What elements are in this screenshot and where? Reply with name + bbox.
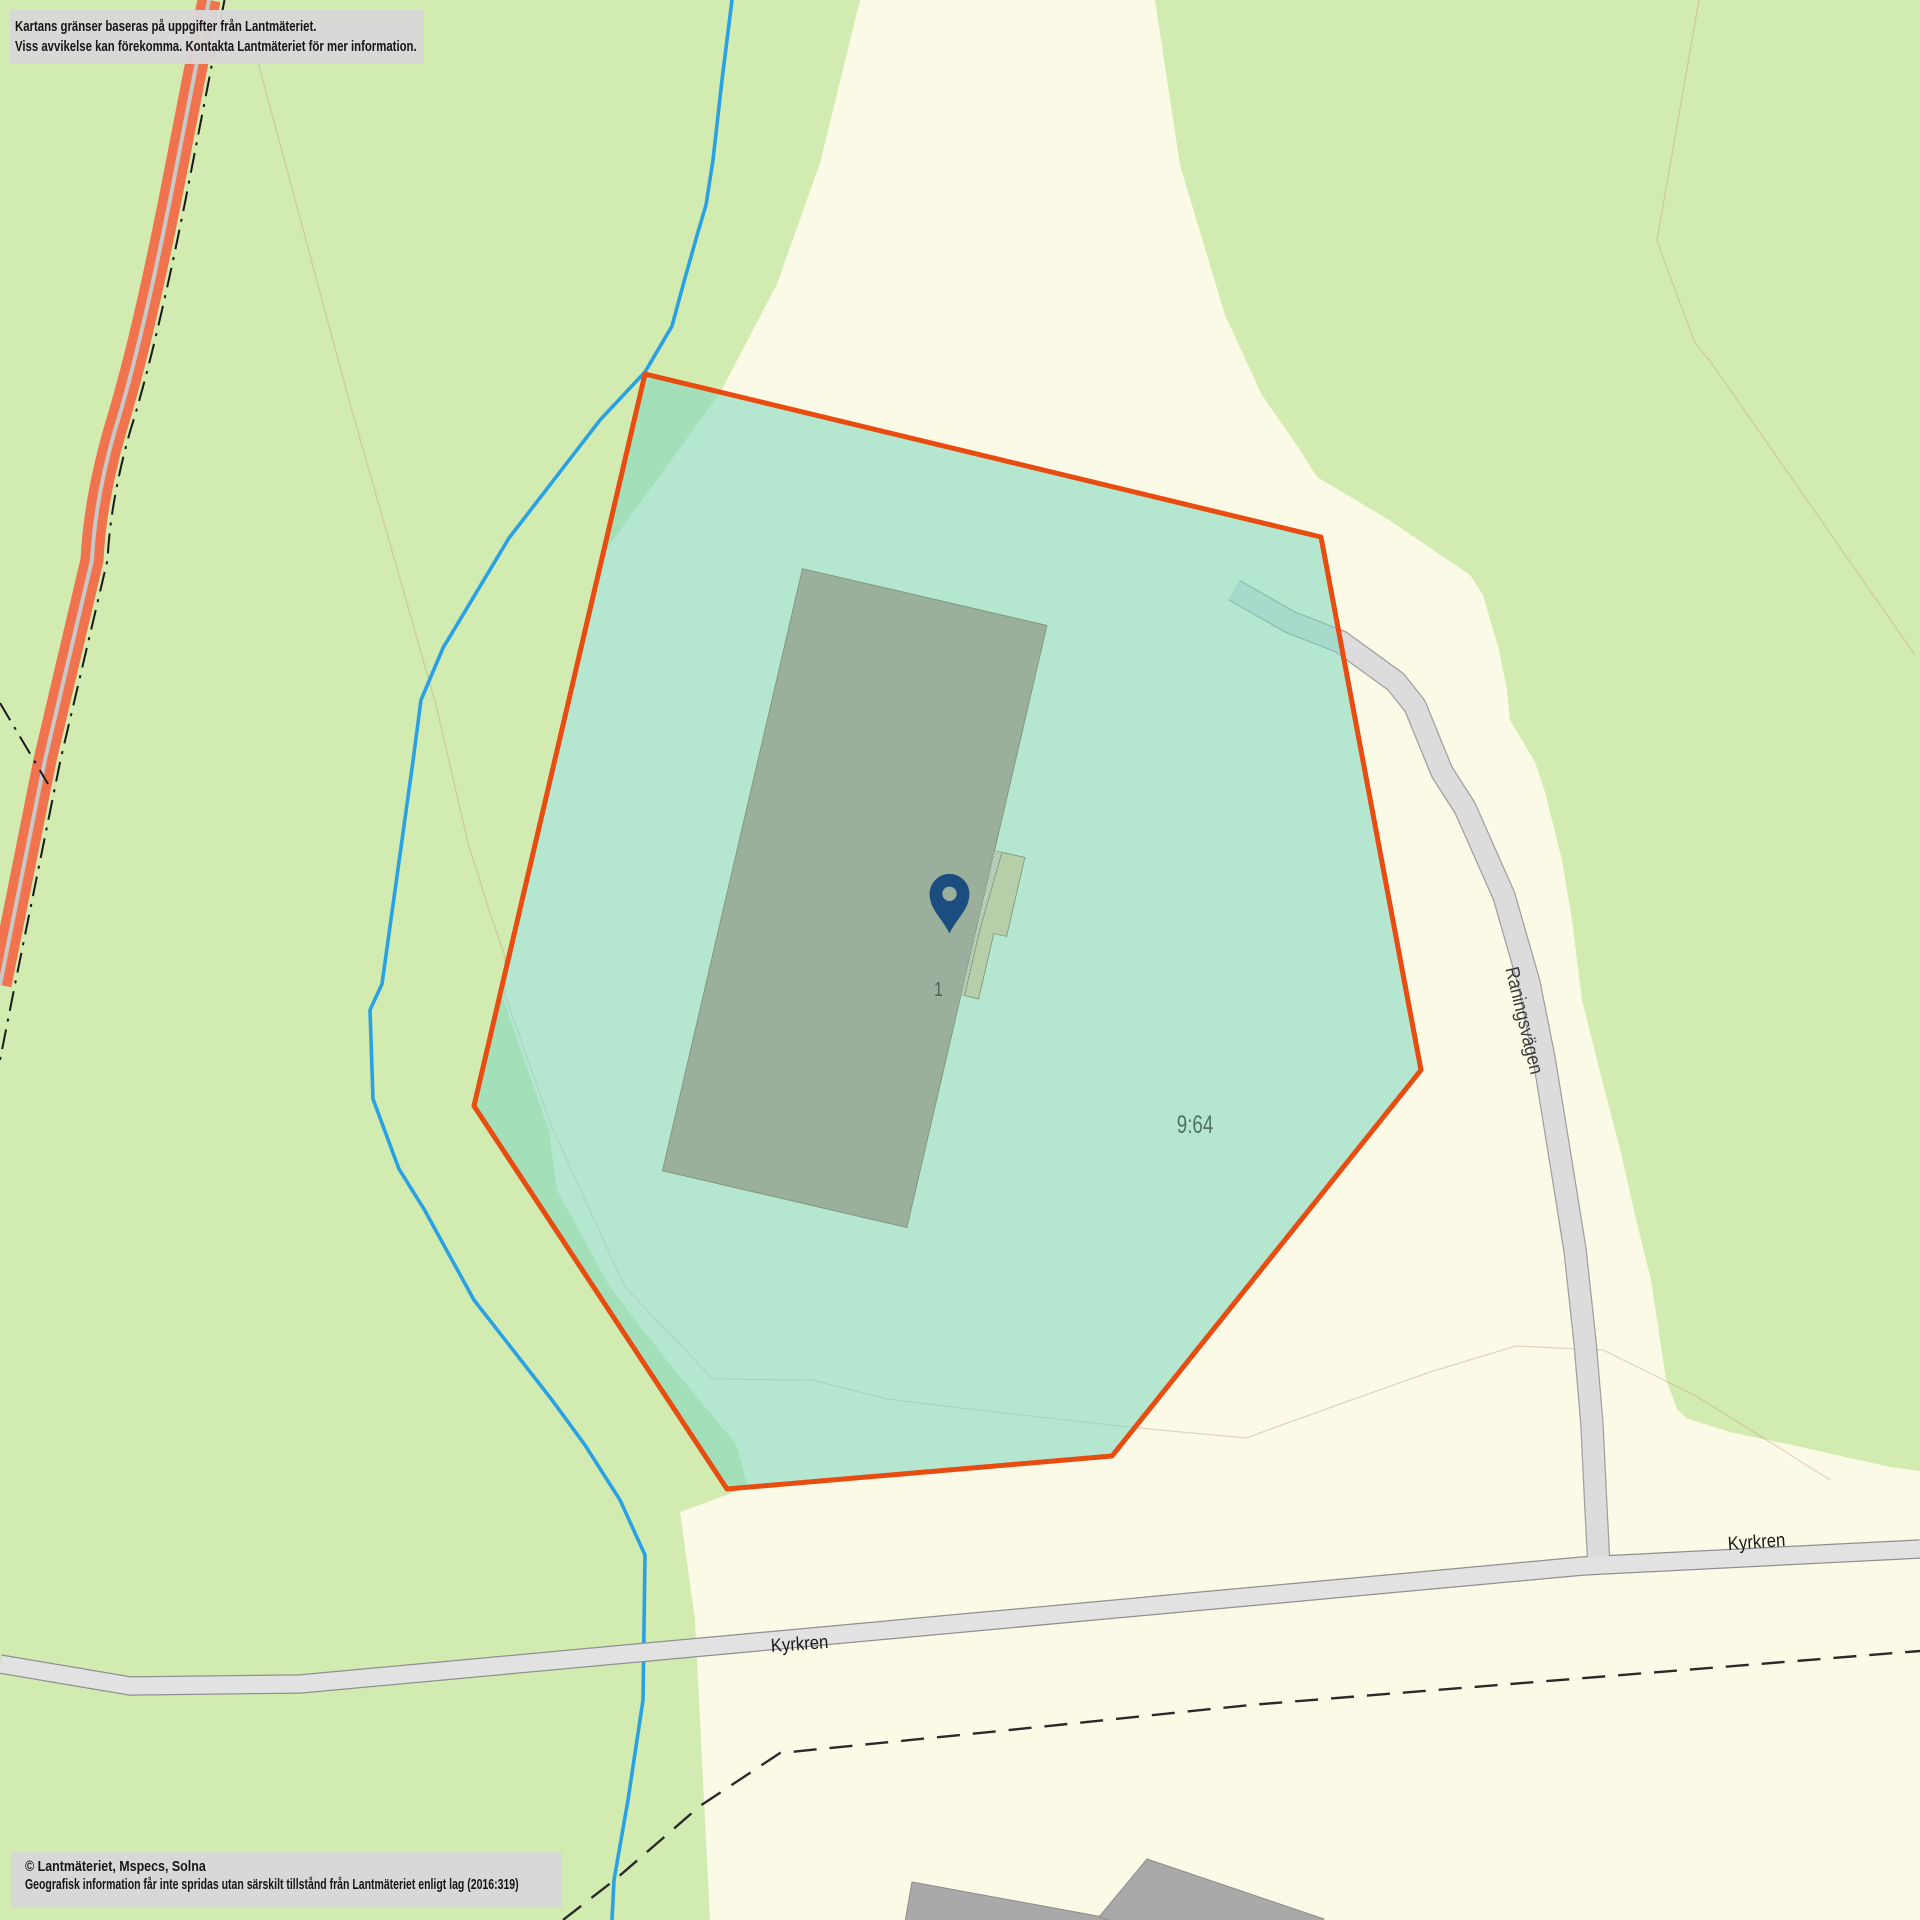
svg-text:9:64: 9:64 [1177, 1110, 1213, 1138]
svg-text:1: 1 [934, 978, 943, 1000]
svg-text:Kyrkren: Kyrkren [770, 1631, 829, 1656]
svg-text:Kyrkren: Kyrkren [1727, 1529, 1786, 1554]
